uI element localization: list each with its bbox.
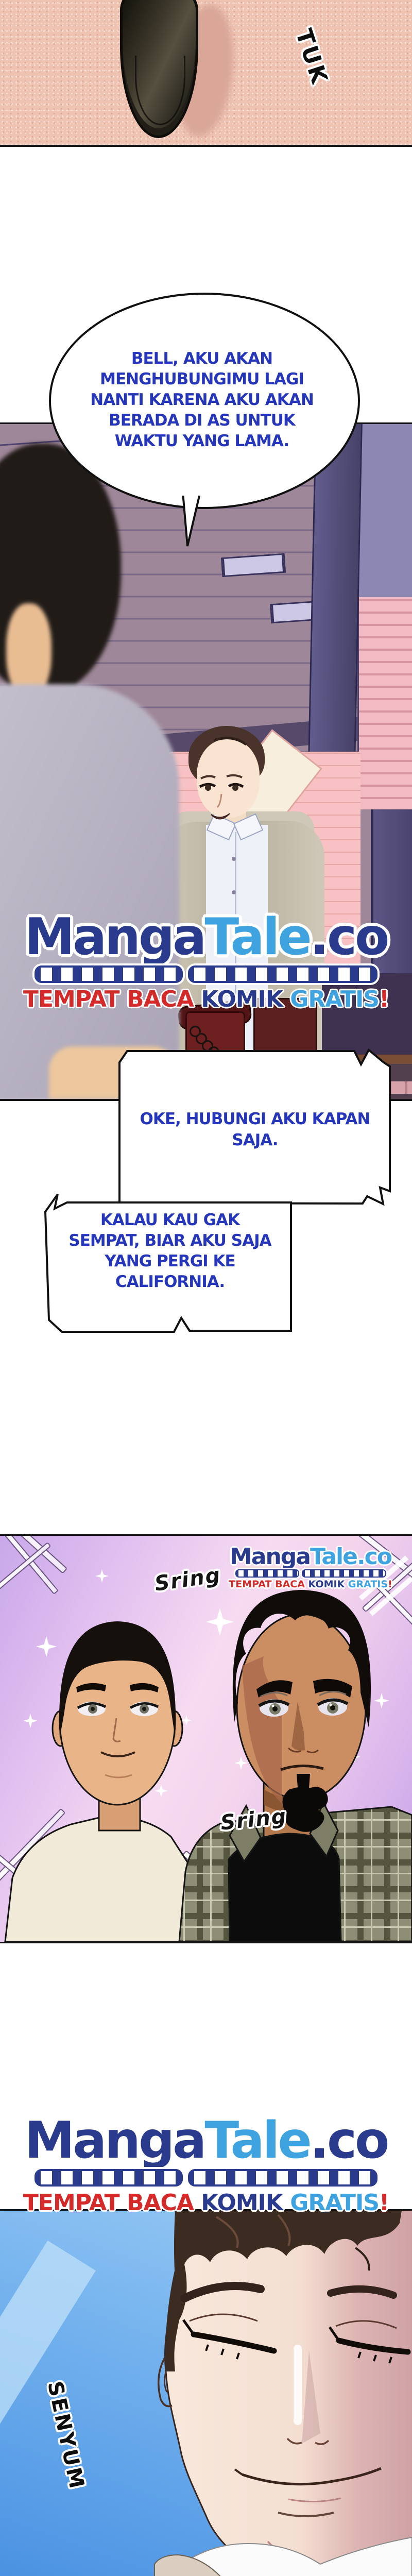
track-bar-icon xyxy=(35,965,183,983)
logo-tale: Tale xyxy=(310,1544,357,1570)
track-bar-icon xyxy=(188,2169,377,2187)
speech-line: NANTI KARENA AKU AKAN xyxy=(73,389,331,410)
logo-manga: Manga xyxy=(25,2111,205,2170)
track-bar-icon xyxy=(35,2169,183,2187)
speech-line: YANG PERGI KE xyxy=(59,1251,281,1272)
tagline-tempat-baca: TEMPAT BACA xyxy=(229,1579,308,1590)
logo-tagline: TEMPAT BACA KOMIK GRATIS! xyxy=(0,2192,412,2214)
speech-line: SAJA. xyxy=(131,1130,379,1151)
track-bar-icon xyxy=(235,1569,299,1578)
shirt-button xyxy=(232,890,236,894)
logo-track-bar xyxy=(0,2169,412,2187)
tagline-gratis: GRATIS xyxy=(345,1579,388,1590)
mangatale-wordmark: MangaTale.co xyxy=(220,1546,401,1568)
speech-bubble-1-tail xyxy=(178,490,204,550)
comic-page: TUK BELL, AKU AKAN MENGHUBUNGIMU LAGI NA… xyxy=(0,0,412,2576)
panel-carpet xyxy=(0,0,412,147)
logo-domain: .co xyxy=(310,908,388,967)
speech-line: KALAU KAU GAK xyxy=(59,1210,281,1230)
speech-bubble-3-text: KALAU KAU GAK SEMPAT, BIAR AKU SAJA YANG… xyxy=(59,1210,281,1292)
man-right xyxy=(179,1557,412,1942)
mangatale-logo-overlay-2: MangaTale.co TEMPAT BACA KOMIK GRATIS! xyxy=(0,2115,412,2214)
speech-line: MENGHUBUNGIMU LAGI xyxy=(73,369,331,389)
two-men-art xyxy=(0,1536,412,1942)
logo-tale: Tale xyxy=(204,2111,310,2170)
tagline-exclaim: ! xyxy=(379,986,389,1012)
tagline-gratis: GRATIS xyxy=(283,986,379,1012)
speech-bubbles-2-3 xyxy=(0,1041,412,1340)
speech-bubble-1-text: BELL, AKU AKAN MENGHUBUNGIMU LAGI NANTI … xyxy=(73,348,331,451)
speech-line: WAKTU YANG LAMA. xyxy=(73,431,331,451)
mangatale-wordmark: MangaTale.co xyxy=(0,2115,412,2166)
speech-line: SEMPAT, BIAR AKU SAJA xyxy=(59,1230,281,1251)
logo-manga: Manga xyxy=(25,908,205,967)
nose-highlight xyxy=(294,2345,302,2425)
man-left xyxy=(5,1621,197,1942)
tagline-gratis: GRATIS xyxy=(283,2190,379,2216)
panel-two-friends: Sring Sring xyxy=(0,1534,412,1943)
logo-track-bar xyxy=(0,965,412,983)
track-bar-icon xyxy=(302,1569,386,1578)
logo-track-bar xyxy=(220,1569,401,1578)
logo-domain: .co xyxy=(357,1544,391,1570)
logo-tagline: TEMPAT BACA KOMIK GRATIS! xyxy=(220,1580,401,1589)
mangatale-wordmark: MangaTale.co xyxy=(0,912,412,962)
tagline-exclaim: ! xyxy=(379,2190,389,2216)
tagline-tempat-baca: TEMPAT BACA xyxy=(23,2190,201,2216)
shirt-button xyxy=(232,857,236,861)
tagline-komik: KOMIK xyxy=(308,1579,345,1590)
logo-tagline: TEMPAT BACA KOMIK GRATIS! xyxy=(0,988,412,1011)
speech-line: BERADA DI AS UNTUK xyxy=(73,410,331,431)
foreground-man-shoulder xyxy=(0,684,179,1101)
pink-blind xyxy=(357,597,412,809)
tagline-exclaim: ! xyxy=(388,1579,392,1590)
tagline-tempat-baca: TEMPAT BACA xyxy=(23,986,201,1012)
logo-tale: Tale xyxy=(204,908,310,967)
logo-domain: .co xyxy=(310,2111,388,2170)
speech-line: OKE, HUBUNGI AKU KAPAN xyxy=(131,1109,379,1130)
track-bar-icon xyxy=(188,965,377,983)
speech-line: CALIFORNIA. xyxy=(59,1272,281,1292)
tagline-komik: KOMIK xyxy=(201,2190,283,2216)
face-skin xyxy=(165,2211,412,2576)
tagline-komik: KOMIK xyxy=(201,986,283,1012)
smiling-man-features xyxy=(185,733,273,836)
speech-bubble-2-text: OKE, HUBUNGI AKU KAPAN SAJA. xyxy=(131,1109,379,1151)
right-wall xyxy=(357,424,412,597)
speech-line: BELL, AKU AKAN xyxy=(73,348,331,369)
mangatale-watermark-small: MangaTale.co TEMPAT BACA KOMIK GRATIS! xyxy=(220,1546,401,1589)
logo-manga: Manga xyxy=(230,1544,310,1570)
mangatale-logo-overlay-1: MangaTale.co TEMPAT BACA KOMIK GRATIS! xyxy=(0,912,412,1011)
